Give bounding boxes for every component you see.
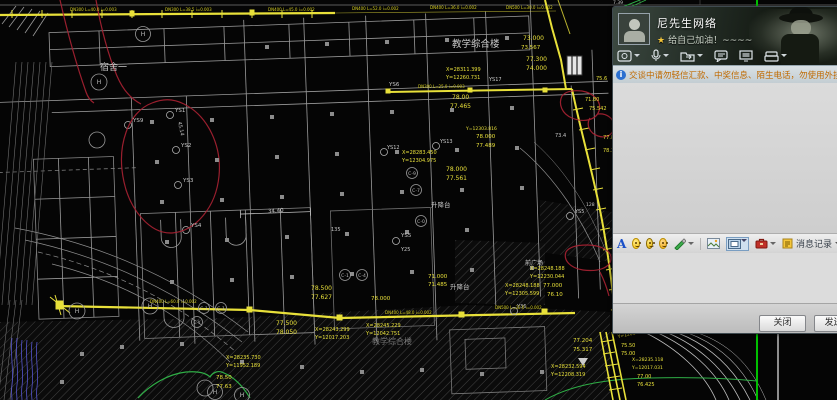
cad-label: Y=12303.816 [465, 126, 497, 132]
cad-label: 74.000 [526, 65, 547, 72]
cad-label: 76.10 [547, 292, 563, 298]
cad-label: YS12 [386, 145, 400, 151]
remote-demo-icon[interactable] [739, 50, 753, 62]
cad-label: 77.500 [276, 320, 297, 327]
send-file-icon[interactable] [680, 50, 703, 62]
multi-chat-icon[interactable] [714, 50, 728, 62]
cad-label: DN400 L=52.0 i=0.002 [352, 6, 399, 11]
cad-label: DN400 L=45.0 i=0.002 [268, 7, 315, 12]
close-button[interactable]: 关闭(C) [759, 315, 806, 332]
svg-text:C-7: C-7 [412, 188, 420, 194]
avatar-head [629, 19, 640, 30]
emoticon-icon[interactable] [632, 238, 640, 249]
screenshot-pen-icon[interactable] [673, 238, 694, 250]
cad-label: X=28248.188 [530, 266, 565, 272]
cad-label: 71.80 [585, 97, 599, 103]
cad-label: 78.50 [216, 375, 232, 381]
cad-label: 78.500 [311, 285, 332, 292]
cad-label: 128 [586, 202, 595, 208]
message-log[interactable]: 消息记录 [782, 237, 837, 250]
cad-label: 77.627 [311, 294, 332, 301]
cad-label: X=28235.730 [226, 355, 261, 361]
cad-label: 71.000 [428, 274, 448, 280]
cad-label: X=28283.450 [402, 150, 437, 156]
svg-text:C-1: C-1 [341, 273, 349, 279]
cad-label: YS3 [182, 178, 194, 184]
video-call-icon[interactable] [617, 50, 640, 62]
button-bar: 关闭(C) 发送(S) [613, 303, 837, 333]
cad-label: 34.40 [268, 208, 285, 215]
svg-text:C-9: C-9 [408, 171, 416, 177]
cad-label: YS6 [388, 82, 400, 88]
svg-text:C-4: C-4 [358, 273, 366, 279]
send-picture-icon[interactable] [707, 238, 720, 249]
cad-label: Y=12208.319 [550, 372, 585, 378]
cad-label: Y25 [400, 247, 410, 253]
signature-text: 给自己加油！~~~~ [668, 36, 752, 46]
font-icon[interactable]: A [617, 238, 626, 250]
svg-text:C-1: C-1 [217, 306, 225, 312]
cad-label: Y=12017.031 [631, 365, 663, 371]
cad-label: 77.489 [476, 143, 496, 149]
cad-label: Y=12260.731 [445, 75, 480, 81]
chat-title: 尼先生网络 [657, 15, 717, 31]
cad-label: YS2 [180, 143, 191, 149]
svg-text:H: H [141, 31, 146, 38]
notice-text: 交谈中请勿轻信汇款、中奖信息、陌生电话，勿使用外挂软件 [629, 69, 837, 81]
cad-label: DN300 L=38.5 i=0.003 [165, 7, 212, 12]
cad-label: DN300 L=40.0 i=0.003 [70, 7, 117, 12]
cad-label: DN400 L=60.0 i=0.002 [150, 299, 197, 304]
cad-label: Y=12042.751 [365, 331, 400, 337]
cad-label: 77.204 [573, 338, 593, 344]
cad-label: 71.485 [428, 282, 448, 288]
cad-label: DN400 L=48.0 i=0.002 [385, 310, 432, 315]
cad-label: 78.000 [446, 166, 467, 173]
cad-label: 75.542 [589, 106, 607, 112]
cad-label: 78.000 [371, 296, 391, 302]
cad-label: 77.300 [526, 56, 547, 63]
cad-label: 升降台 [450, 282, 470, 291]
chat-banner: 尼先生网络 ★给自己加油！~~~~ [613, 7, 837, 65]
cad-label: 73.4 [555, 133, 566, 139]
send-button[interactable]: 发送(S) [814, 315, 837, 332]
svg-text:H: H [240, 392, 245, 399]
info-icon: i [616, 70, 626, 80]
cad-label: YS9 [132, 118, 144, 124]
cad-label: X=28245.229 [366, 323, 401, 329]
cad-label: DN500 L=32.0 i=0.002 [495, 305, 542, 310]
app-share-icon[interactable] [764, 50, 787, 62]
magic-emoticon-icon[interactable] [646, 238, 654, 249]
avatar-body [624, 31, 645, 42]
input-toolbar: A 消息记录 [613, 233, 837, 253]
cad-label: Y=12305.599 [504, 291, 539, 297]
cad-label: 77.465 [450, 103, 471, 110]
cad-label: 75.00 [621, 351, 635, 357]
message-input[interactable] [613, 253, 837, 303]
message-area[interactable] [613, 83, 837, 233]
cad-label: Y=12304.975 [401, 158, 436, 164]
cad-label: X=28311.399 [446, 67, 481, 73]
svg-text:H: H [97, 79, 102, 86]
cad-label: 135 [331, 227, 341, 233]
cad-label: 78.050 [276, 329, 297, 336]
shake-emoticon-icon[interactable] [659, 238, 667, 249]
cad-label: 升降台 [431, 200, 451, 209]
cad-label: DN300 L=25.0 i=0.003 [418, 84, 465, 89]
cad-label: 77.561 [446, 175, 467, 182]
cad-label: 75.50 [621, 343, 635, 349]
svg-text:H: H [75, 308, 80, 315]
chat-signature: ★给自己加油！~~~~ [657, 33, 752, 46]
toolbox-icon[interactable] [755, 238, 776, 249]
cad-label: Y=11952.189 [225, 363, 260, 369]
cad-label: YS13 [439, 139, 453, 145]
cad-label: 宿舍一 [100, 61, 127, 73]
cad-label: YS5 [574, 209, 584, 215]
cad-label: 教学综合楼 [372, 336, 412, 346]
screen-capture-icon[interactable] [726, 237, 749, 251]
chat-toolbar [617, 47, 787, 64]
cad-label: 77.63 [216, 384, 232, 390]
cad-label: YS1 [174, 108, 185, 114]
cad-label: YS5 [400, 233, 412, 239]
cad-label: 73.000 [523, 35, 544, 42]
cad-label: 76.425 [637, 382, 655, 388]
security-notice: i 交谈中请勿轻信汇款、中奖信息、陌生电话，勿使用外挂软件 [613, 65, 837, 83]
cad-label: 教学综合楼 [452, 38, 500, 50]
cad-label: DN500 L=30.0 i=0.002 [506, 5, 553, 10]
cad-label: Y=12230.044 [529, 274, 564, 280]
cad-label: YS17 [488, 77, 502, 83]
cad-label: X=28243.299 [315, 327, 350, 333]
cad-label: 77.000 [543, 283, 563, 289]
star-icon: ★ [657, 36, 665, 46]
cad-label: 77.00 [637, 374, 651, 380]
message-log-icon [782, 238, 793, 249]
cad-label: X=28232.594 [551, 364, 586, 370]
svg-text:C-Y: C-Y [194, 320, 201, 326]
voice-call-icon[interactable] [651, 49, 669, 62]
cad-label: 75.6 [596, 76, 607, 82]
chat-window[interactable]: 尼先生网络 ★给自己加油！~~~~ [612, 6, 837, 334]
cad-label: 75.317 [573, 347, 593, 353]
avatar[interactable] [618, 13, 650, 45]
cad-label: X=28235.118 [632, 357, 663, 363]
svg-text:C-0: C-0 [417, 219, 425, 225]
cad-label: DN400 L=36.0 i=0.002 [430, 5, 477, 10]
message-log-label: 消息记录 [796, 237, 832, 250]
cad-label: X=28248.188 [505, 283, 540, 289]
cad-label: 73.567 [521, 45, 541, 51]
desktop: C-1C-4C-1C-1C-YC-9C-7C-0HHHHHH 宿舍一教学综合楼教… [0, 0, 837, 400]
cad-label: 78.000 [476, 134, 496, 140]
svg-text:C-1: C-1 [200, 306, 208, 312]
cad-label: YS4 [190, 223, 202, 229]
cad-label: 78.00 [452, 94, 469, 101]
cad-label: Y=12017.203 [314, 335, 349, 341]
